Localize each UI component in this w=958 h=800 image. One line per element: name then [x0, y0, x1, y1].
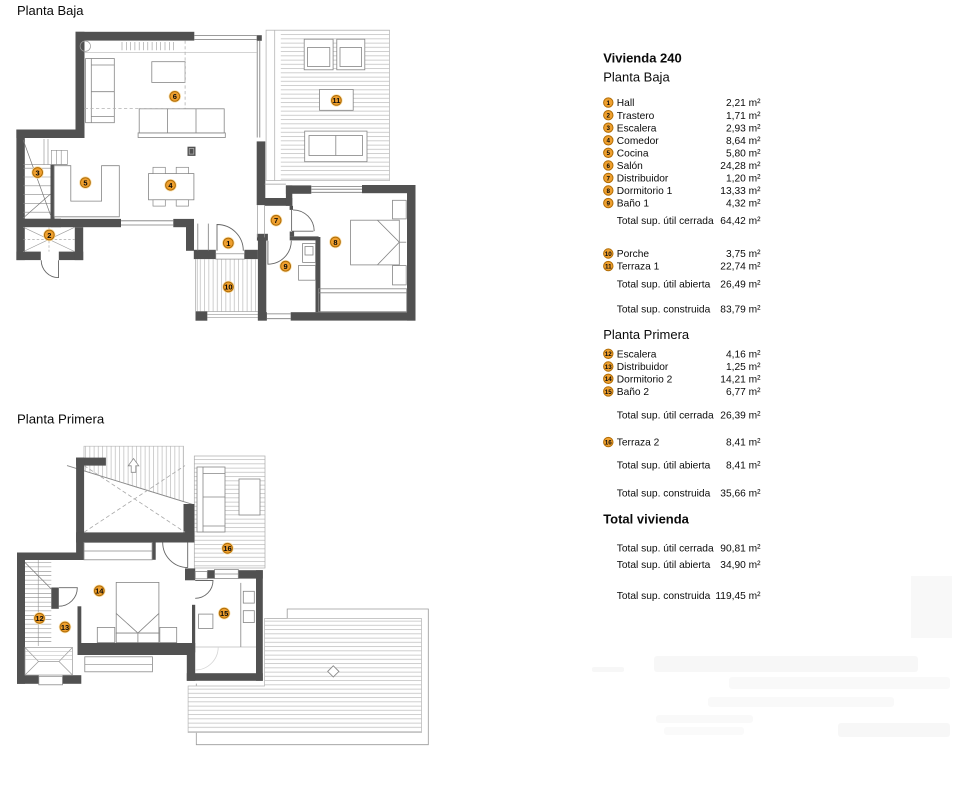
svg-text:6: 6 [607, 163, 611, 170]
svg-text:13: 13 [61, 623, 69, 632]
svg-text:Vivienda 240: Vivienda 240 [603, 51, 682, 66]
svg-text:5,80 m²: 5,80 m² [726, 148, 761, 159]
svg-text:Porche: Porche [617, 249, 650, 260]
svg-text:Total sup. útil cerrada: Total sup. útil cerrada [617, 543, 714, 554]
svg-text:Planta Primera: Planta Primera [603, 327, 690, 342]
svg-text:1,25 m²: 1,25 m² [726, 362, 761, 373]
svg-text:Distribuidor: Distribuidor [617, 174, 669, 185]
svg-text:1: 1 [607, 100, 611, 107]
svg-text:6: 6 [173, 92, 177, 101]
svg-text:Planta Baja: Planta Baja [603, 70, 670, 85]
svg-text:8: 8 [333, 238, 337, 247]
svg-text:Total vivienda: Total vivienda [603, 512, 689, 527]
svg-text:16: 16 [223, 544, 231, 553]
svg-text:9: 9 [284, 262, 288, 271]
svg-text:24,28 m²: 24,28 m² [720, 161, 761, 172]
svg-text:Cocina: Cocina [617, 148, 649, 159]
svg-text:26,49 m²: 26,49 m² [720, 280, 761, 291]
svg-text:Total sup. útil abierta: Total sup. útil abierta [617, 460, 711, 471]
svg-text:1,20 m²: 1,20 m² [726, 174, 761, 185]
svg-text:2: 2 [47, 231, 51, 240]
svg-text:7: 7 [607, 175, 611, 182]
svg-text:83,79 m²: 83,79 m² [720, 305, 761, 316]
svg-text:Escalera: Escalera [617, 349, 657, 360]
svg-text:Baño 1: Baño 1 [617, 199, 650, 210]
svg-text:5: 5 [83, 178, 87, 187]
svg-text:4,16 m²: 4,16 m² [726, 349, 761, 360]
svg-text:Terraza 1: Terraza 1 [617, 262, 660, 273]
svg-text:Distribuidor: Distribuidor [617, 362, 669, 373]
svg-text:8,41 m²: 8,41 m² [726, 460, 761, 471]
svg-text:26,39 m²: 26,39 m² [720, 411, 761, 422]
svg-text:119,45 m²: 119,45 m² [715, 591, 761, 602]
svg-text:15: 15 [605, 389, 613, 396]
svg-text:1,71 m²: 1,71 m² [726, 111, 761, 122]
svg-text:Total sup. útil abierta: Total sup. útil abierta [617, 280, 711, 291]
svg-text:4: 4 [607, 138, 611, 145]
svg-text:3: 3 [36, 168, 40, 177]
svg-text:4,32 m²: 4,32 m² [726, 199, 761, 210]
svg-text:10: 10 [605, 251, 613, 258]
svg-text:14: 14 [95, 587, 104, 596]
svg-text:16: 16 [605, 440, 613, 447]
svg-text:5: 5 [607, 150, 611, 157]
svg-text:14,21 m²: 14,21 m² [720, 374, 761, 385]
svg-text:13,33 m²: 13,33 m² [720, 186, 761, 197]
svg-text:8,41 m²: 8,41 m² [726, 438, 761, 449]
svg-text:1: 1 [226, 239, 230, 248]
svg-text:13: 13 [605, 364, 613, 371]
svg-text:Salón: Salón [617, 161, 643, 172]
svg-text:3,75 m²: 3,75 m² [726, 249, 761, 260]
svg-text:22,74 m²: 22,74 m² [720, 262, 761, 273]
svg-text:35,66 m²: 35,66 m² [720, 488, 761, 499]
svg-text:10: 10 [224, 283, 232, 292]
svg-text:Planta Baja: Planta Baja [17, 3, 84, 18]
svg-text:Comedor: Comedor [617, 136, 660, 147]
svg-text:34,90 m²: 34,90 m² [720, 560, 761, 571]
svg-text:2,93 m²: 2,93 m² [726, 123, 761, 134]
svg-text:2,21 m²: 2,21 m² [726, 98, 761, 109]
svg-text:Total sup. útil abierta: Total sup. útil abierta [617, 560, 711, 571]
svg-text:2: 2 [607, 113, 611, 120]
svg-text:11: 11 [332, 96, 340, 105]
svg-text:11: 11 [605, 264, 612, 271]
svg-text:3: 3 [607, 125, 611, 132]
svg-text:Total sup. construida: Total sup. construida [617, 305, 711, 316]
svg-text:Total sup. útil cerrada: Total sup. útil cerrada [617, 216, 714, 227]
svg-text:8: 8 [607, 188, 611, 195]
svg-text:7: 7 [274, 216, 278, 225]
svg-text:Planta Primera: Planta Primera [17, 412, 105, 427]
svg-text:Dormitorio 2: Dormitorio 2 [617, 374, 673, 385]
svg-text:64,42 m²: 64,42 m² [720, 216, 761, 227]
svg-text:14: 14 [605, 376, 613, 383]
svg-text:Hall: Hall [617, 98, 635, 109]
svg-text:Total sup. útil cerrada: Total sup. útil cerrada [617, 411, 714, 422]
svg-text:9: 9 [607, 201, 611, 208]
svg-text:12: 12 [605, 351, 613, 358]
svg-text:Baño 2: Baño 2 [617, 387, 650, 398]
svg-text:90,81 m²: 90,81 m² [720, 543, 761, 554]
svg-text:8,64 m²: 8,64 m² [726, 136, 761, 147]
svg-text:Trastero: Trastero [617, 111, 655, 122]
svg-text:6,77 m²: 6,77 m² [726, 387, 761, 398]
svg-text:Terraza 2: Terraza 2 [617, 438, 660, 449]
svg-text:15: 15 [220, 609, 228, 618]
svg-text:12: 12 [35, 614, 43, 623]
svg-text:Dormitorio 1: Dormitorio 1 [617, 186, 673, 197]
svg-text:Escalera: Escalera [617, 123, 657, 134]
svg-text:Total sup. construida: Total sup. construida [617, 488, 711, 499]
svg-text:Total sup. construida: Total sup. construida [617, 591, 711, 602]
